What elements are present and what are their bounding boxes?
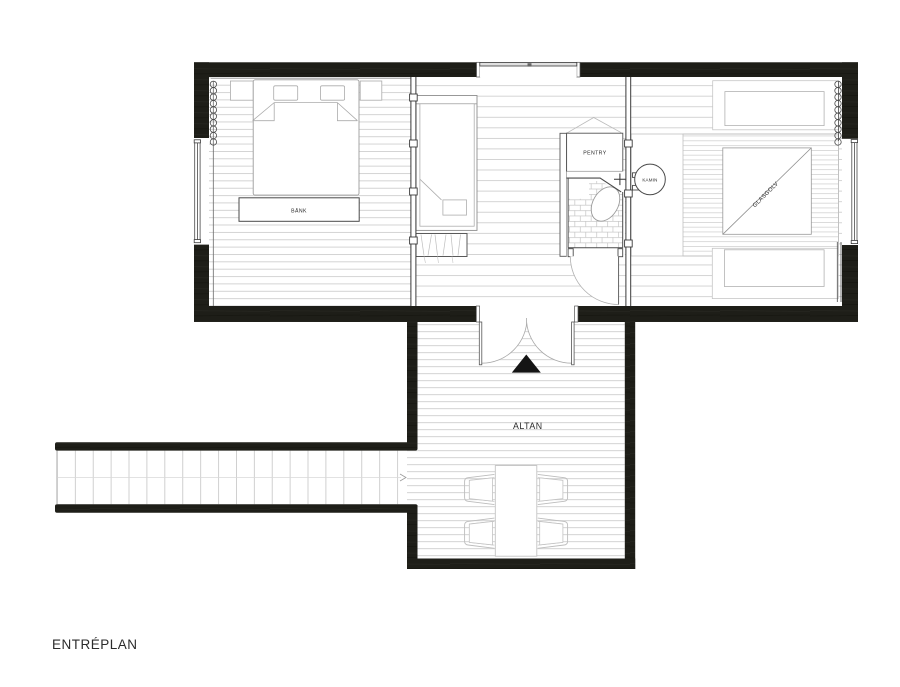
svg-text:ALTAN: ALTAN bbox=[513, 421, 543, 431]
svg-text:KAMIN: KAMIN bbox=[642, 177, 657, 182]
svg-text:PENTRY: PENTRY bbox=[583, 151, 606, 157]
svg-text:BÄNK: BÄNK bbox=[291, 207, 307, 214]
svg-text:ENTRÉPLAN: ENTRÉPLAN bbox=[52, 637, 138, 652]
